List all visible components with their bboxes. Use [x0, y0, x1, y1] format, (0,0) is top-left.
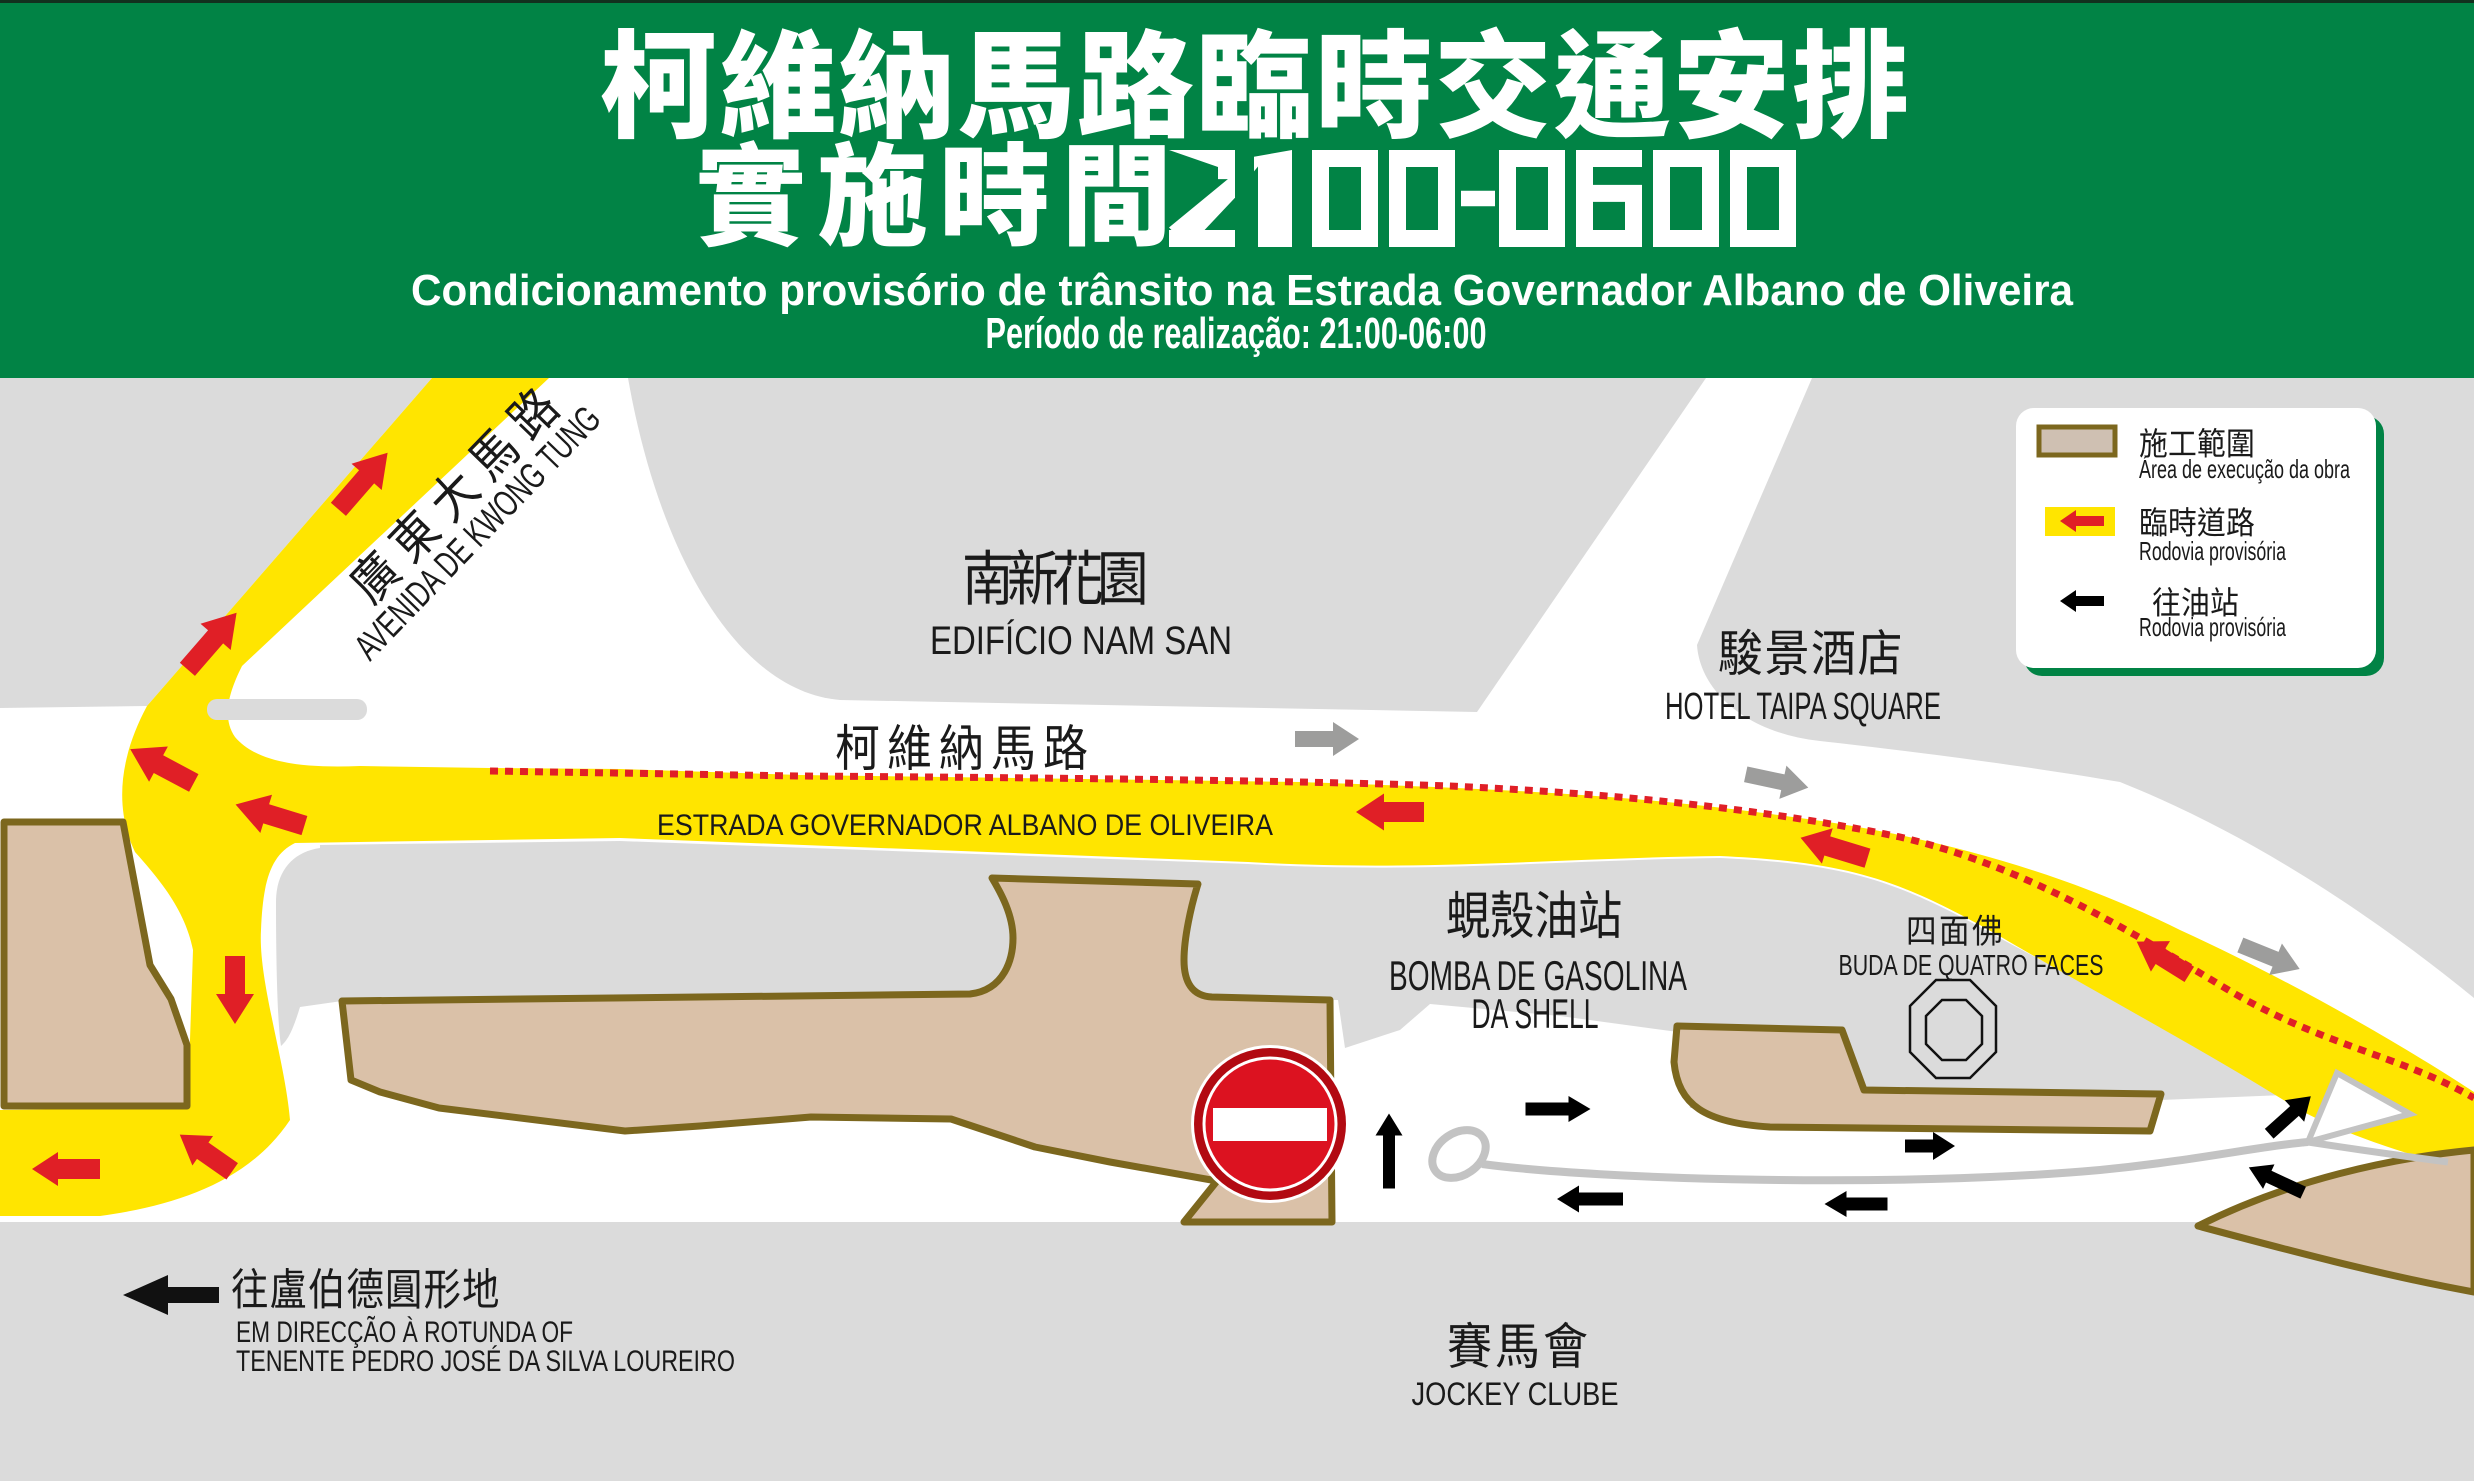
svg-text:Condicionamento provisório de: Condicionamento provisório de trânsito n… [411, 266, 2074, 315]
svg-text:ESTRADA GOVERNADOR ALBANO DE O: ESTRADA GOVERNADOR ALBANO DE OLIVEIRA [657, 809, 1273, 842]
svg-text:Área de execução da obra: Área de execução da obra [2139, 454, 2350, 484]
svg-text:EDIFÍCIO NAM SAN: EDIFÍCIO NAM SAN [930, 618, 1232, 663]
svg-text:HOTEL TAIPA SQUARE: HOTEL TAIPA SQUARE [1665, 686, 1941, 728]
svg-text:Rodovia provisória: Rodovia provisória [2139, 536, 2286, 566]
svg-text:DA SHELL: DA SHELL [1472, 990, 1599, 1037]
svg-text:TENENTE PEDRO JOSÉ DA SILVA LO: TENENTE PEDRO JOSÉ DA SILVA LOUREIRO [236, 1345, 735, 1378]
svg-text:Rodovia provisória: Rodovia provisória [2139, 612, 2286, 642]
svg-text:JOCKEY CLUBE: JOCKEY CLUBE [1412, 1376, 1619, 1412]
svg-text:EM DIRECÇÃO À ROTUNDA OF: EM DIRECÇÃO À ROTUNDA OF [236, 1315, 573, 1349]
svg-text:BUDA DE QUATRO FACES: BUDA DE QUATRO FACES [1839, 950, 2104, 982]
svg-text:Período de realização: 21:00-0: Período de realização: 21:00-06:00 [986, 309, 1487, 358]
